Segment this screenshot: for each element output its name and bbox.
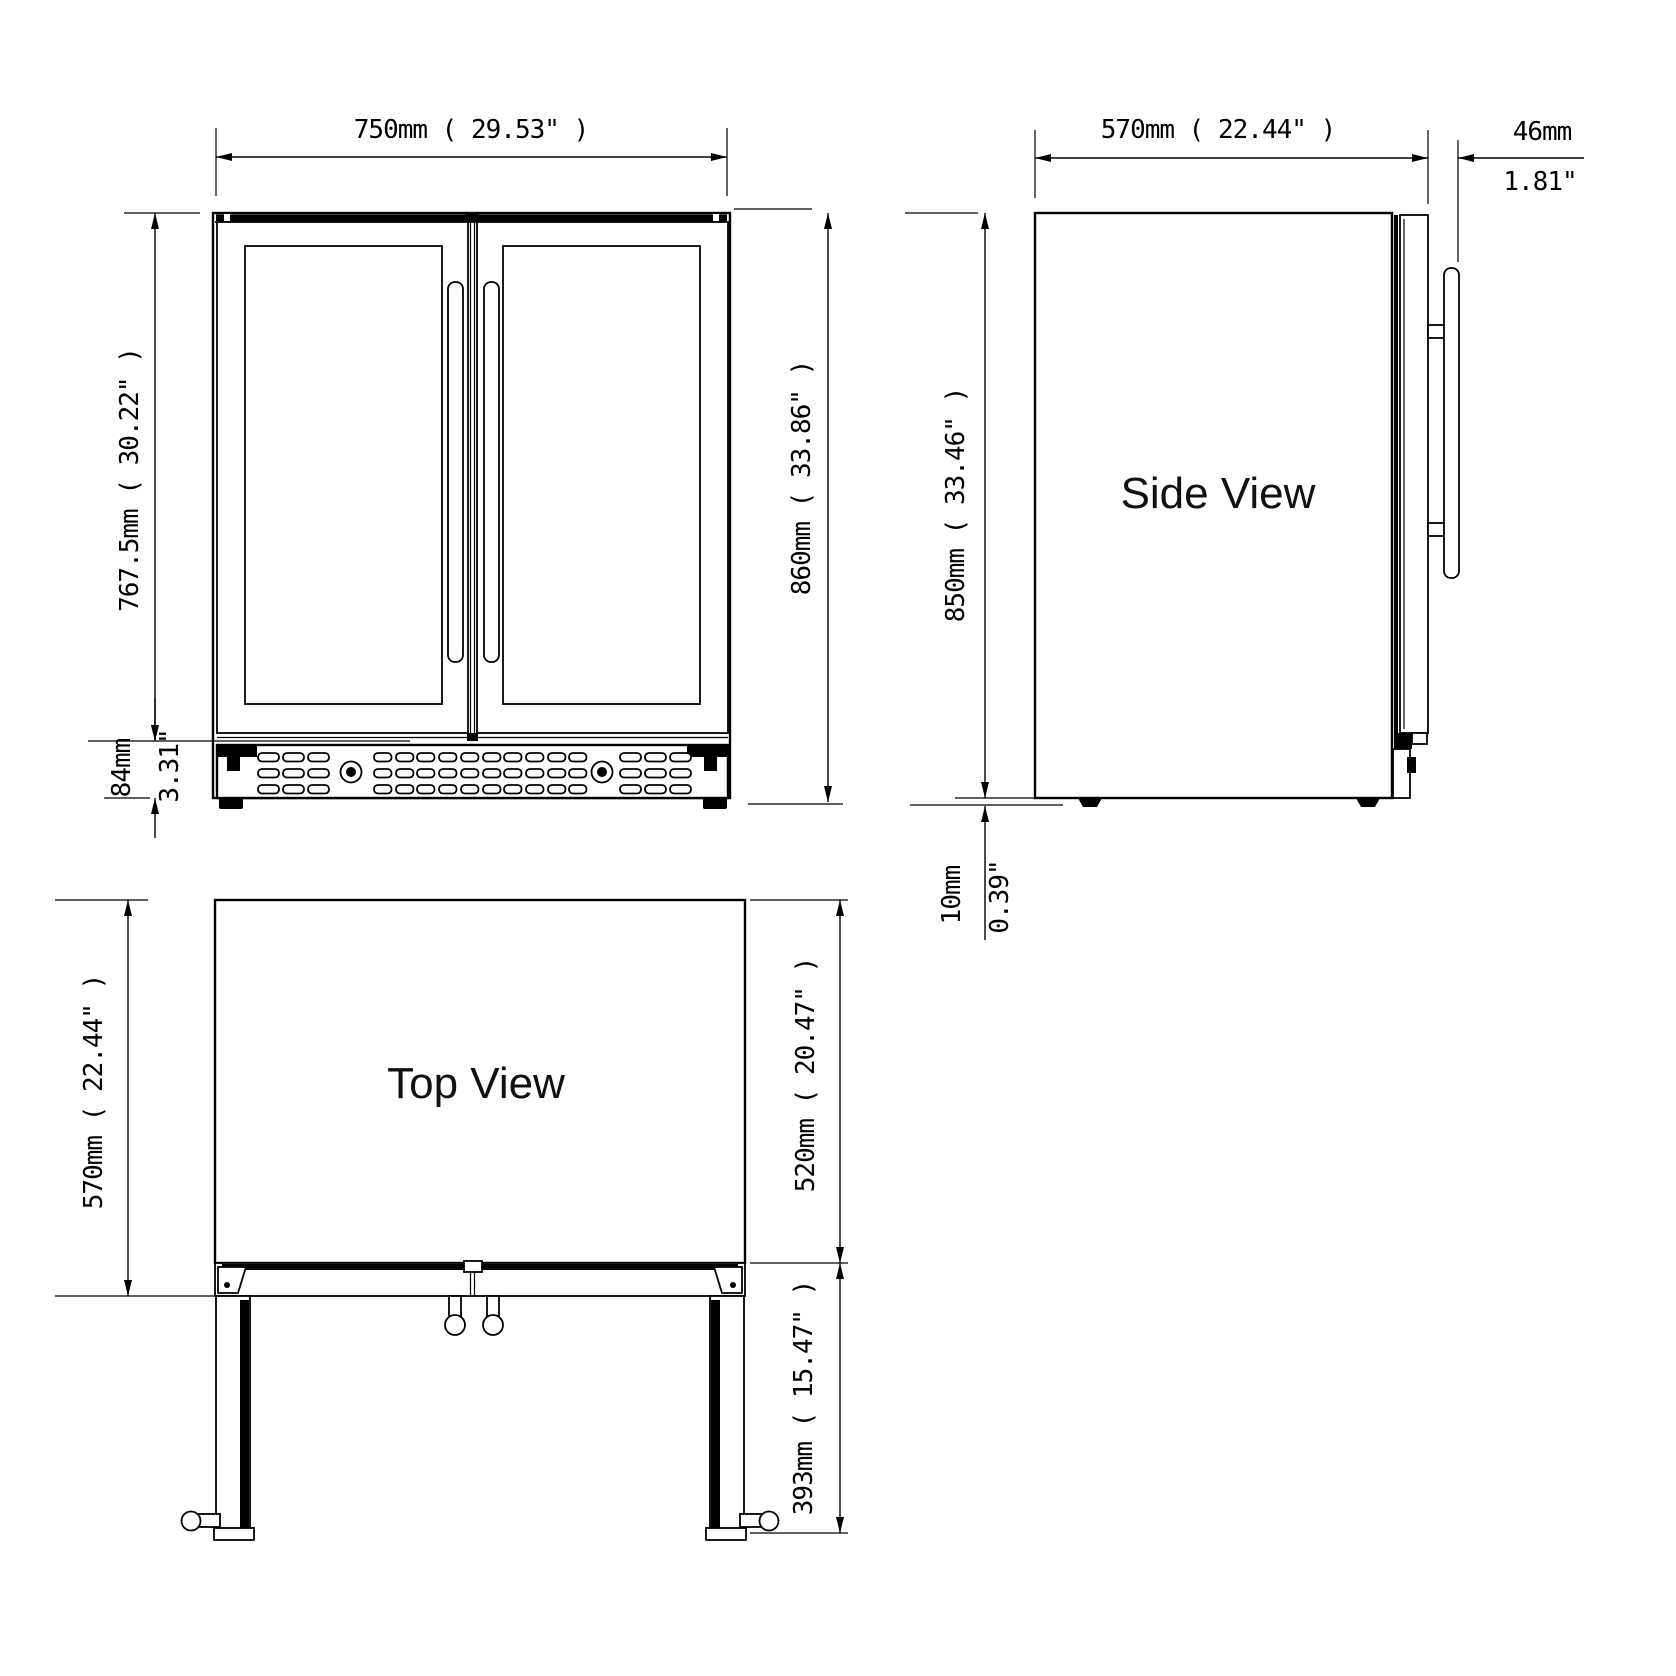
side-depth-dimension: 570mm ( 22.44" ) <box>1035 115 1428 204</box>
side-depth-label: 570mm ( 22.44" ) <box>1101 115 1335 145</box>
side-body-height-label: 850mm ( 33.46" ) <box>941 388 971 622</box>
side-handle-depth-dimension: 46mm 1.81" <box>1458 117 1584 262</box>
side-body-height-dimension: 850mm ( 33.46" ) <box>905 213 985 798</box>
side-hinge-knob <box>1407 757 1416 773</box>
top-right-door-handle <box>760 1512 779 1531</box>
front-left-foot <box>219 798 243 809</box>
front-total-height-dimension: 860mm ( 33.86" ) <box>734 209 843 804</box>
top-door-swing-dimension: 393mm ( 15.47" ) <box>750 1263 848 1533</box>
top-left-door-handle <box>182 1512 201 1531</box>
top-view: Top View <box>55 900 848 1540</box>
dimension-drawing: 750mm ( 29.53" ) 767.5mm ( 30.22" ) 84mm… <box>0 0 1676 1676</box>
side-foot-height-dimension: 10mm 0.39" <box>910 798 1063 940</box>
front-door-height-label: 767.5mm ( 30.22" ) <box>115 348 145 612</box>
side-handle-bar <box>1444 268 1459 578</box>
top-depth-label: 570mm ( 22.44" ) <box>79 975 109 1209</box>
front-left-glass <box>245 246 442 704</box>
side-front-foot <box>1078 798 1102 807</box>
side-handle-mm-label: 46mm <box>1513 117 1572 147</box>
front-right-foot <box>703 798 727 809</box>
side-handle-standoff-top <box>1428 325 1445 338</box>
front-right-handle <box>484 282 499 662</box>
front-left-handle <box>448 282 463 662</box>
front-vent-height-dimension: 84mm 3.31" <box>104 698 185 838</box>
top-center-handles <box>445 1296 503 1335</box>
top-depth-dimension: 570mm ( 22.44" ) <box>55 900 215 1296</box>
side-door-gap <box>1394 215 1398 746</box>
top-body-depth-dimension: 520mm ( 20.47" ) <box>750 900 848 1263</box>
side-foot-in-label: 0.39" <box>985 860 1015 933</box>
drawing-canvas: 750mm ( 29.53" ) 767.5mm ( 30.22" ) 84mm… <box>0 0 1676 1676</box>
top-right-open-door <box>706 1296 779 1540</box>
front-right-hinge <box>687 745 727 757</box>
vent-louvers-right <box>620 753 691 794</box>
vent-screw-left <box>341 762 362 783</box>
side-rear-foot <box>1356 798 1380 807</box>
front-mullion-top-cap <box>465 213 479 222</box>
side-handle-standoff-bottom <box>1428 523 1445 536</box>
front-vent-mm-label: 84mm <box>107 738 137 797</box>
side-foot-mm-label: 10mm <box>937 865 967 924</box>
top-mullion-cap <box>464 1261 482 1272</box>
side-view: Side View 570mm ( 22.44" ) 46mm 1.81" <box>905 115 1584 940</box>
front-view: 750mm ( 29.53" ) 767.5mm ( 30.22" ) 84mm… <box>88 115 843 838</box>
front-width-label: 750mm ( 29.53" ) <box>354 115 588 145</box>
vent-screw-right <box>592 762 613 783</box>
top-door-swing-label: 393mm ( 15.47" ) <box>789 1281 819 1515</box>
front-right-glass <box>503 246 700 704</box>
top-left-open-door <box>182 1296 255 1540</box>
side-handle-in-label: 1.81" <box>1503 167 1576 197</box>
front-vent-in-label: 3.31" <box>155 729 185 802</box>
vent-louvers-left <box>258 753 329 794</box>
front-total-height-label: 860mm ( 33.86" ) <box>787 361 817 595</box>
top-view-label: Top View <box>387 1059 565 1108</box>
front-left-hinge <box>217 745 257 757</box>
side-view-label: Side View <box>1121 469 1316 518</box>
top-body-depth-label: 520mm ( 20.47" ) <box>791 958 821 1192</box>
front-width-dimension: 750mm ( 29.53" ) <box>216 115 727 196</box>
